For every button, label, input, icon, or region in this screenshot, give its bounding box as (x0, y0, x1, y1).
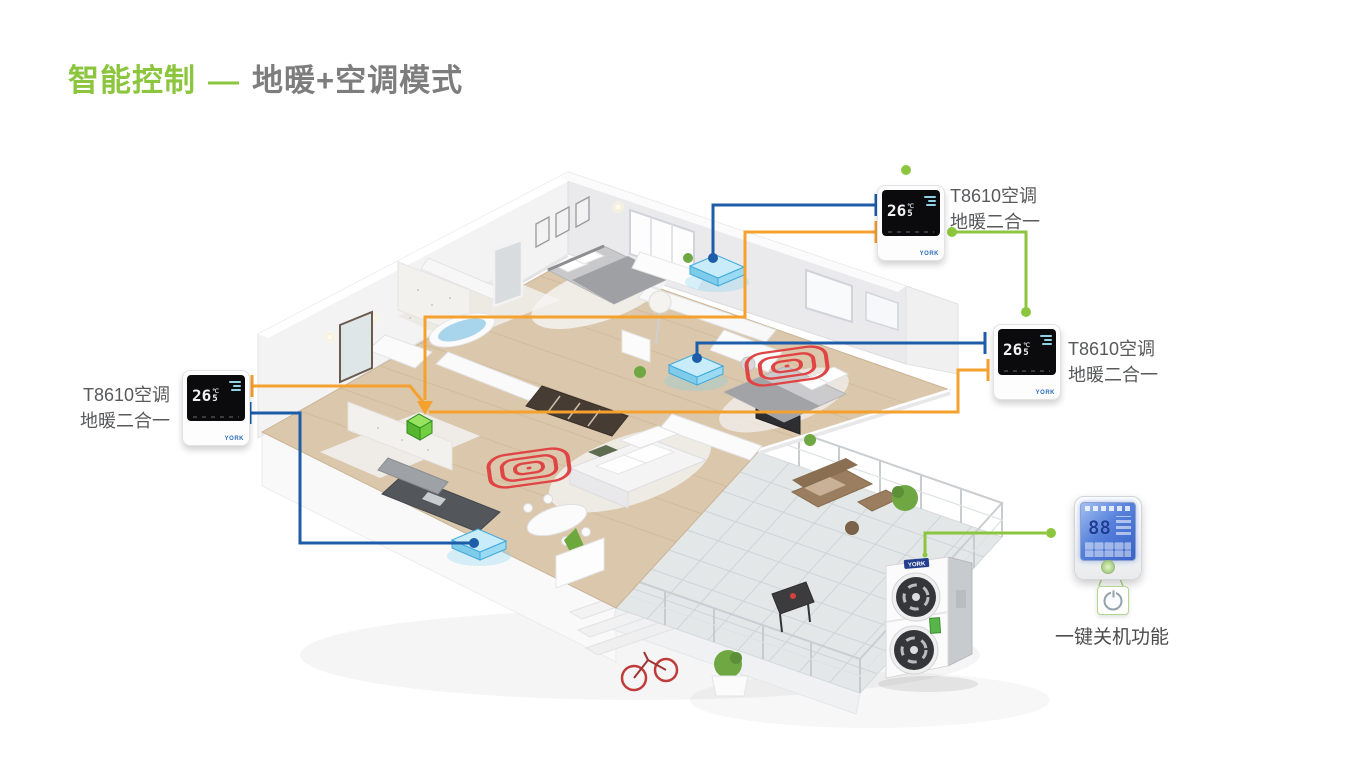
power-button-zoom-box (1097, 586, 1129, 615)
brand-logo: YORK (225, 436, 244, 442)
brand-logo: YORK (920, 251, 939, 257)
green-node-dot (1046, 528, 1056, 538)
green-node-dot (1021, 307, 1031, 317)
lcd-digits: 88 (1088, 517, 1111, 539)
thermostat-screen: 26℃5 (998, 329, 1056, 375)
green-line-thermostat-link (952, 232, 1026, 308)
thermostat-screen: 26℃5 (187, 375, 245, 421)
wifi-status-icons (225, 379, 241, 391)
thermostat-device-right: 26℃5 YORK (993, 324, 1061, 400)
wifi-status-icons (1036, 333, 1052, 345)
wired-controller-device: 88 (1074, 496, 1142, 580)
touch-buttons-row (193, 416, 239, 418)
slide: YORK (0, 0, 1366, 764)
controller-lcd-screen: 88 (1080, 502, 1136, 561)
thermostat-label-right: T8610空调 地暖二合一 (1068, 336, 1158, 388)
wifi-status-icons (920, 194, 936, 206)
touch-buttons-row (888, 231, 934, 233)
floor-lamp (649, 291, 671, 313)
title-text: 地暖+空调模式 (252, 63, 463, 98)
shutdown-function-label: 一键关机功能 (1032, 622, 1192, 649)
thermostat-device-left: 26℃5 YORK (182, 370, 250, 446)
green-node-dot (901, 165, 911, 175)
thermostat-label-left: T8610空调 地暖二合一 (40, 382, 170, 434)
brand-logo: YORK (1036, 390, 1055, 396)
lcd-button-grid (1085, 542, 1131, 557)
power-icon (1104, 591, 1123, 610)
power-button (1101, 560, 1115, 574)
lcd-side-icons (1116, 516, 1131, 535)
temperature-reading: 26℃5 (1003, 342, 1030, 358)
lcd-top-icons (1085, 506, 1131, 511)
thermostat-screen: 26℃5 (882, 190, 940, 236)
thermostat-label-top: T8610空调 地暖二合一 (950, 183, 1040, 235)
side-vent (956, 590, 966, 608)
touch-buttons-row (1004, 370, 1050, 372)
title-highlight: 智能控制 (68, 63, 196, 98)
slide-title: 智能控制—地暖+空调模式 (68, 55, 463, 100)
temperature-reading: 26℃5 (192, 388, 219, 404)
temperature-reading: 26℃5 (887, 203, 914, 219)
title-dash: — (208, 63, 240, 98)
thermostat-device-top: 26℃5 YORK (877, 185, 945, 261)
energy-sticker (930, 618, 941, 634)
